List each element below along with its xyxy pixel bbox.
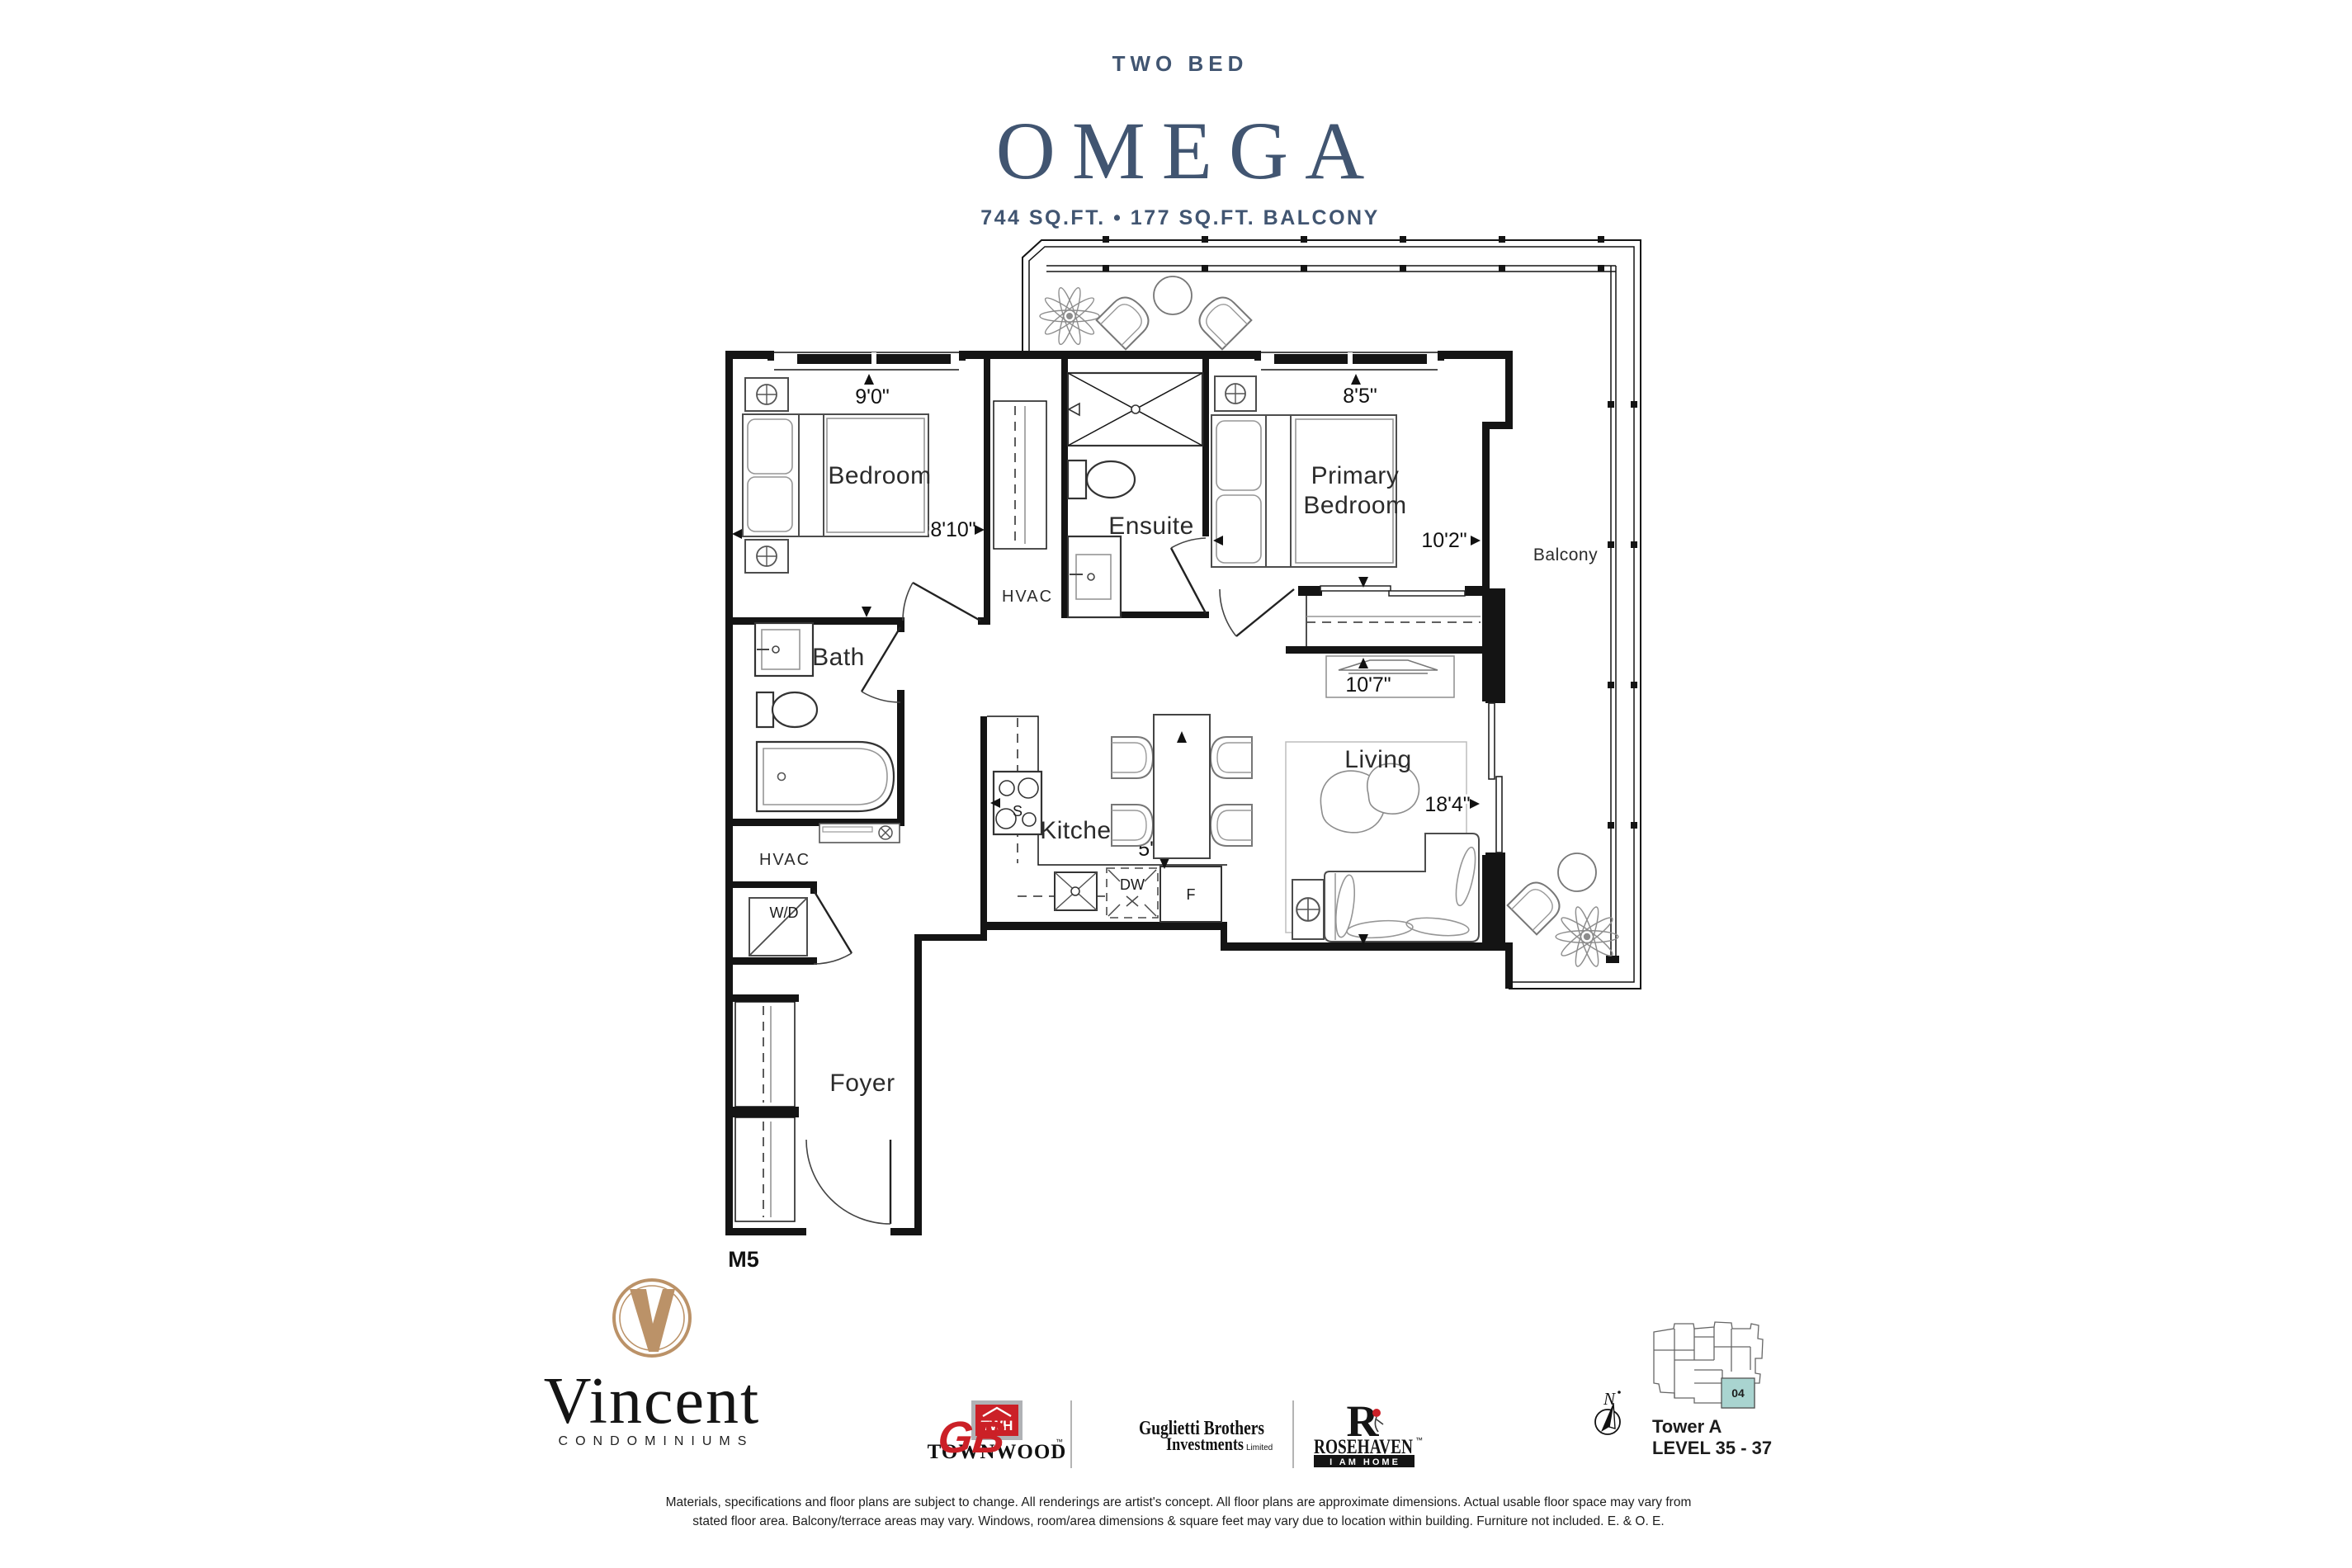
rose-icon — [1372, 1409, 1381, 1417]
disclaimer-line1: Materials, specifications and floor plan… — [666, 1495, 1692, 1509]
bed-icon — [1211, 415, 1396, 567]
vanity-sink-icon — [755, 623, 813, 676]
keyplan-unit-label: 04 — [1731, 1386, 1745, 1400]
guglietti-line2: Investments — [1166, 1433, 1244, 1454]
hvac-lower-label: HVAC — [759, 851, 810, 869]
dining-chair-icon — [1211, 805, 1252, 846]
primary-label-line2: Bedroom — [1303, 492, 1406, 519]
rosehaven-tm: ™ — [1415, 1436, 1423, 1444]
lamp-icon — [757, 546, 777, 566]
primary-label-line1: Primary — [1311, 462, 1400, 489]
guglietti-monogram: GB — [936, 1413, 1008, 1462]
dishwasher-label: DW — [1120, 876, 1145, 893]
disclaimer-line2: stated floor area. Balcony/terrace areas… — [692, 1514, 1664, 1528]
fridge-icon: F — [1160, 867, 1221, 922]
dining-chair-icon — [1112, 737, 1153, 778]
dining-chair-icon — [1211, 737, 1252, 778]
lamp-icon — [757, 385, 777, 404]
rosehaven-tagline: I AM HOME — [1329, 1457, 1400, 1467]
living-width-dim: 10'7" — [1345, 673, 1391, 697]
sink-icon — [1055, 872, 1097, 910]
guglietti-line3: Limited — [1246, 1443, 1273, 1452]
bath-label: Bath — [812, 644, 865, 671]
vincent-name: Vincent — [544, 1365, 760, 1438]
bedroom-label: Bedroom — [828, 462, 931, 489]
floorplan-sheet: TWO BED OMEGA 744 SQ.FT. • 177 SQ.FT. BA… — [0, 0, 2352, 1568]
shower-icon — [1068, 373, 1202, 446]
hvac-upper-label: HVAC — [1002, 588, 1053, 606]
keyplan-tower: Tower A — [1652, 1416, 1721, 1437]
plan-name: OMEGA — [996, 105, 1381, 196]
dining-chair-icon — [1112, 805, 1153, 846]
balcony-label: Balcony — [1533, 545, 1598, 564]
compass-dot — [1618, 1391, 1621, 1394]
rosehaven-name: ROSEHAVEN — [1314, 1436, 1413, 1458]
sliding-door-panel — [1389, 591, 1465, 596]
primary-depth-dim: 10'2" — [1421, 529, 1466, 552]
bathtub-icon — [757, 742, 894, 811]
sliding-door-panel — [1320, 586, 1391, 591]
fridge-label: F — [1187, 886, 1196, 903]
stove-label: S — [1013, 803, 1023, 819]
vincent-subtitle: CONDOMINIUMS — [559, 1434, 754, 1448]
townwood-tm: ™ — [1056, 1438, 1063, 1446]
primary-width-dim: 8'5" — [1343, 385, 1377, 408]
stove-icon: S — [994, 772, 1041, 834]
washer-dryer: W/D — [749, 898, 807, 956]
vent-shelf — [819, 824, 900, 843]
side-table-icon — [1292, 880, 1324, 939]
plan-area: 744 SQ.FT. • 177 SQ.FT. BALCONY — [980, 206, 1380, 229]
bedroom-depth-dim: 8'10" — [930, 518, 975, 541]
living-label: Living — [1344, 746, 1411, 773]
living-depth-dim: 18'4" — [1424, 793, 1470, 816]
washer-dryer-label: W/D — [770, 904, 799, 921]
vanity-sink-icon — [1068, 536, 1121, 617]
toilet-icon — [1068, 460, 1135, 498]
ensuite-label: Ensuite — [1108, 512, 1194, 540]
keyplan-level: LEVEL 35 - 37 — [1652, 1438, 1772, 1458]
lamp-icon — [1226, 384, 1245, 404]
plan-category: TWO BED — [1112, 51, 1249, 76]
foyer-label: Foyer — [829, 1070, 895, 1097]
bedroom-width-dim: 9'0" — [855, 385, 889, 409]
unit-model-label: M5 — [728, 1247, 759, 1272]
toilet-icon — [757, 692, 817, 727]
